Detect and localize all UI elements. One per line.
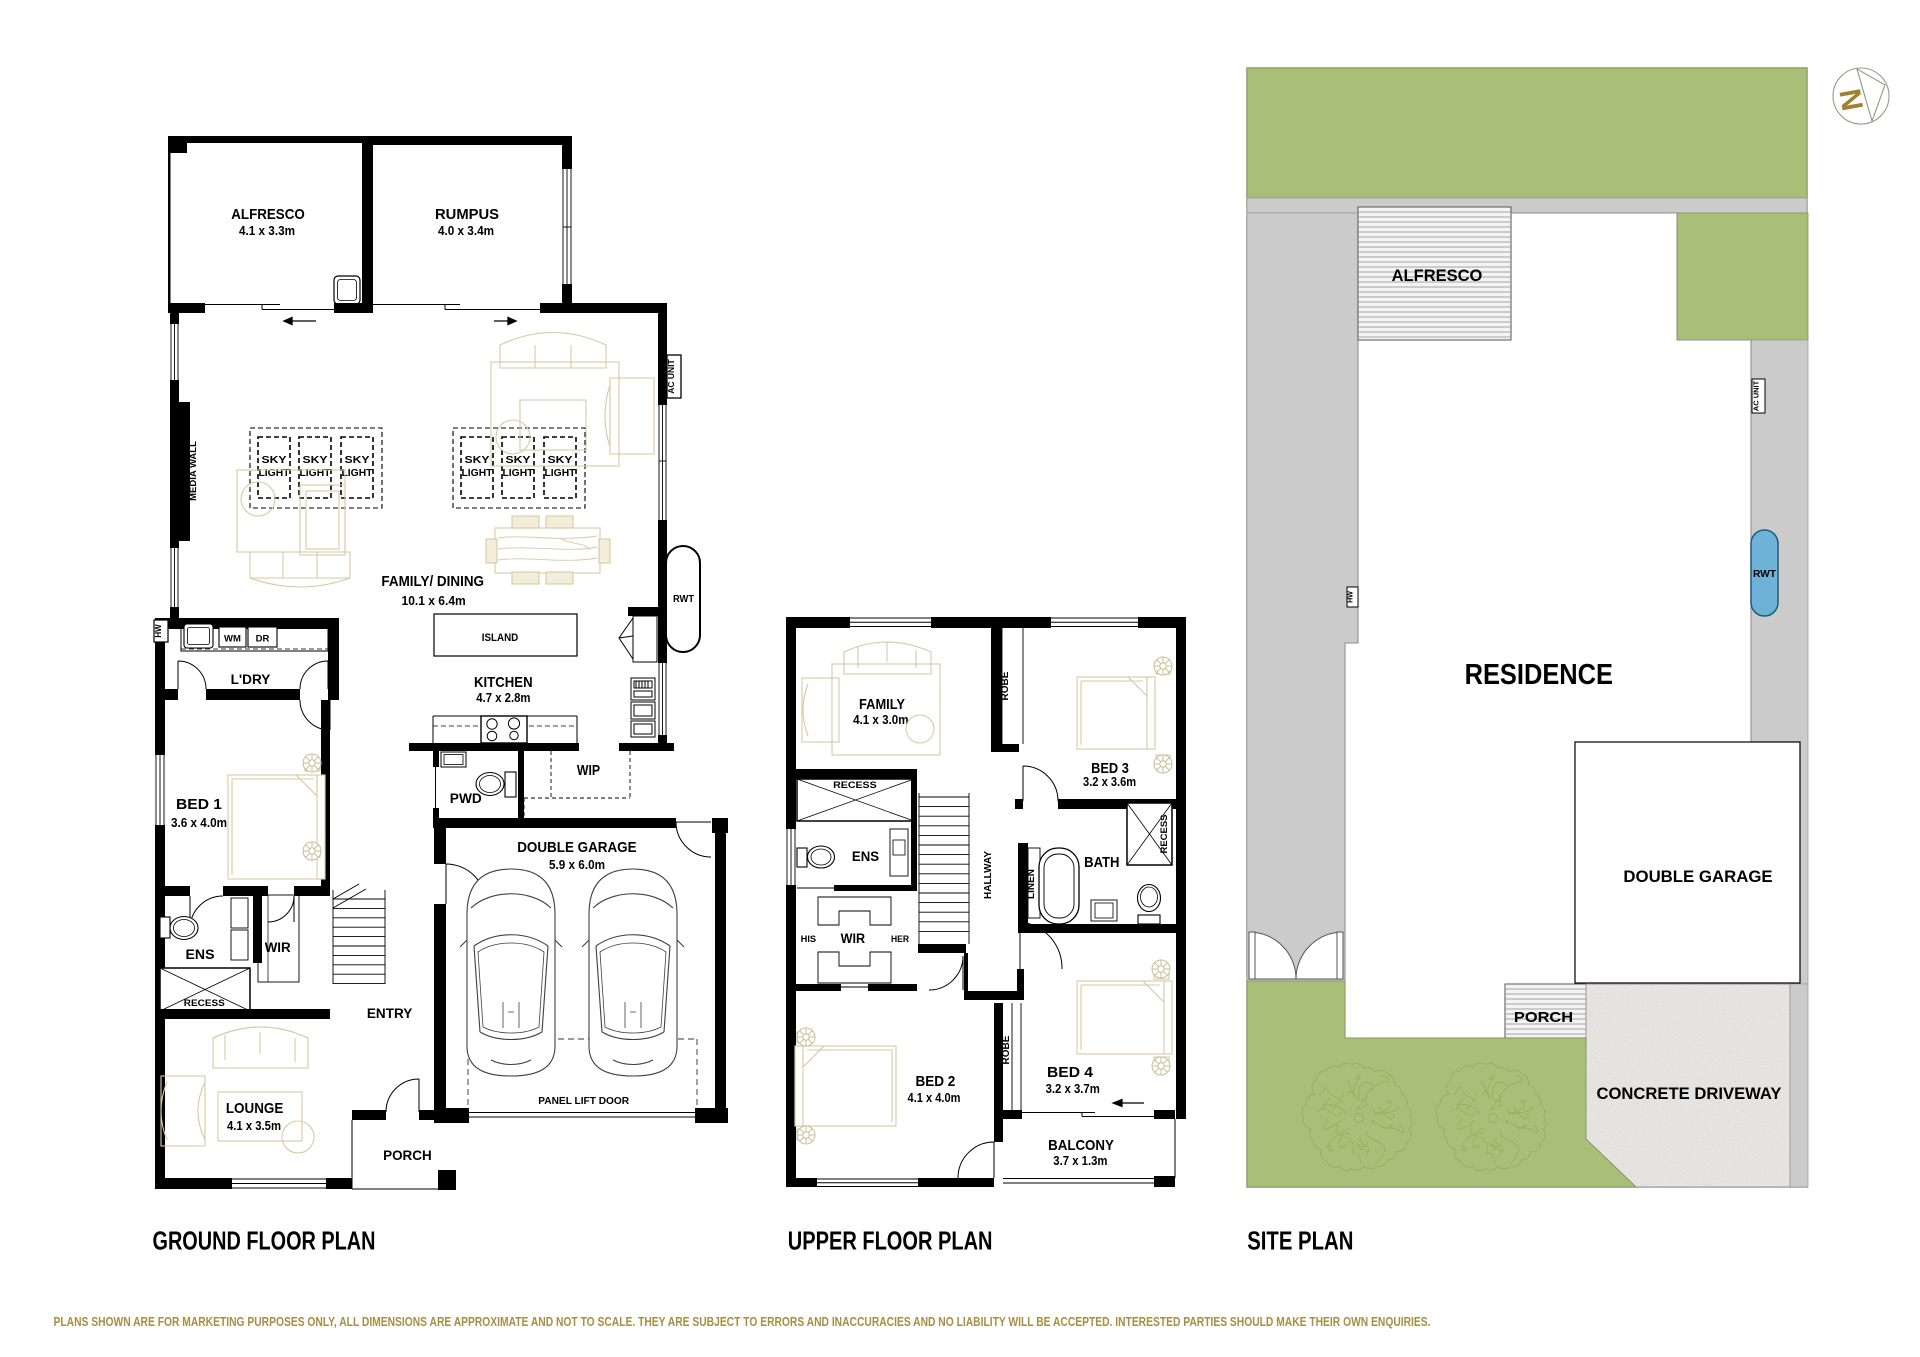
svg-text:LOUNGE: LOUNGE bbox=[226, 1100, 284, 1117]
svg-text:RECESS: RECESS bbox=[184, 998, 225, 1009]
svg-text:ISLAND: ISLAND bbox=[482, 632, 519, 644]
svg-text:RECESS: RECESS bbox=[833, 780, 877, 791]
svg-text:SKY: SKY bbox=[262, 455, 287, 466]
svg-text:BALCONY: BALCONY bbox=[1048, 1137, 1114, 1154]
svg-text:SITE PLAN: SITE PLAN bbox=[1247, 1226, 1353, 1256]
svg-text:ALFRESCO: ALFRESCO bbox=[231, 206, 305, 223]
svg-text:AC UNIT: AC UNIT bbox=[1752, 380, 1761, 411]
svg-text:ENTRY: ENTRY bbox=[367, 1006, 412, 1021]
svg-text:PLANS SHOWN ARE FOR MARKETING: PLANS SHOWN ARE FOR MARKETING PURPOSES O… bbox=[54, 1315, 1431, 1329]
svg-text:UPPER FLOOR PLAN: UPPER FLOOR PLAN bbox=[788, 1226, 993, 1256]
svg-text:WIR: WIR bbox=[841, 931, 866, 946]
svg-text:ENS: ENS bbox=[852, 849, 879, 864]
svg-text:AC UNIT: AC UNIT bbox=[666, 358, 676, 393]
svg-text:4.1 x 3.3m: 4.1 x 3.3m bbox=[239, 224, 295, 238]
svg-text:CONCRETE DRIVEWAY: CONCRETE DRIVEWAY bbox=[1597, 1084, 1783, 1103]
svg-text:4.7 x 2.8m: 4.7 x 2.8m bbox=[476, 691, 530, 705]
svg-text:WM: WM bbox=[224, 634, 241, 645]
svg-text:PANEL LIFT DOOR: PANEL LIFT DOOR bbox=[538, 1096, 630, 1107]
svg-text:PORCH: PORCH bbox=[383, 1148, 432, 1163]
svg-text:LIGHT: LIGHT bbox=[342, 468, 373, 479]
svg-text:FAMILY/ DINING: FAMILY/ DINING bbox=[381, 573, 484, 590]
svg-text:3.2 x 3.6m: 3.2 x 3.6m bbox=[1083, 775, 1136, 789]
svg-text:SKY: SKY bbox=[506, 455, 531, 466]
svg-text:FAMILY: FAMILY bbox=[859, 696, 905, 713]
svg-text:DOUBLE GARAGE: DOUBLE GARAGE bbox=[1623, 867, 1772, 886]
svg-text:HIS: HIS bbox=[801, 934, 817, 945]
svg-text:4.1 x 4.0m: 4.1 x 4.0m bbox=[908, 1091, 961, 1105]
svg-text:3.2 x 3.7m: 3.2 x 3.7m bbox=[1046, 1082, 1100, 1096]
svg-text:ENS: ENS bbox=[186, 947, 215, 962]
svg-text:3.7 x 1.3m: 3.7 x 1.3m bbox=[1053, 1154, 1107, 1168]
svg-text:RECESS: RECESS bbox=[1159, 814, 1170, 853]
svg-text:WIR: WIR bbox=[265, 940, 291, 955]
svg-text:DOUBLE GARAGE: DOUBLE GARAGE bbox=[517, 839, 636, 856]
svg-text:RESIDENCE: RESIDENCE bbox=[1465, 659, 1613, 691]
svg-text:PORCH: PORCH bbox=[1514, 1009, 1573, 1026]
svg-text:GROUND FLOOR PLAN: GROUND FLOOR PLAN bbox=[153, 1226, 376, 1256]
svg-text:LIGHT: LIGHT bbox=[462, 468, 493, 479]
svg-text:LIGHT: LIGHT bbox=[503, 468, 534, 479]
svg-text:HER: HER bbox=[891, 934, 909, 945]
svg-text:BED 4: BED 4 bbox=[1047, 1064, 1094, 1081]
svg-text:BED 2: BED 2 bbox=[915, 1073, 955, 1090]
svg-text:MEDIA WALL: MEDIA WALL bbox=[188, 441, 199, 501]
svg-text:5.9 x 6.0m: 5.9 x 6.0m bbox=[549, 858, 605, 872]
svg-text:BED 1: BED 1 bbox=[176, 796, 222, 813]
svg-text:SKY: SKY bbox=[303, 455, 328, 466]
svg-text:SKY: SKY bbox=[345, 455, 370, 466]
svg-text:SKY: SKY bbox=[548, 455, 573, 466]
svg-text:LINEN: LINEN bbox=[1026, 869, 1037, 899]
svg-text:KITCHEN: KITCHEN bbox=[474, 674, 533, 691]
svg-text:RWT: RWT bbox=[1753, 569, 1776, 580]
svg-text:L'DRY: L'DRY bbox=[231, 672, 271, 687]
svg-text:ROBE: ROBE bbox=[1001, 1035, 1012, 1064]
svg-text:DR: DR bbox=[256, 634, 270, 645]
svg-text:RWT: RWT bbox=[673, 594, 694, 605]
svg-text:WIP: WIP bbox=[577, 762, 600, 779]
svg-text:PWD: PWD bbox=[450, 791, 482, 806]
svg-text:4.1 x 3.5m: 4.1 x 3.5m bbox=[227, 1119, 281, 1133]
svg-text:BATH: BATH bbox=[1084, 854, 1119, 871]
svg-text:HW: HW bbox=[1348, 591, 1355, 603]
svg-text:3.6 x 4.0m: 3.6 x 4.0m bbox=[171, 816, 227, 830]
svg-text:HW: HW bbox=[154, 624, 163, 638]
svg-text:4.0 x 3.4m: 4.0 x 3.4m bbox=[438, 224, 494, 238]
svg-text:RUMPUS: RUMPUS bbox=[435, 206, 499, 223]
svg-text:ROBE: ROBE bbox=[1000, 671, 1011, 700]
svg-text:SKY: SKY bbox=[465, 455, 490, 466]
svg-text:ALFRESCO: ALFRESCO bbox=[1392, 266, 1483, 285]
svg-text:4.1 x 3.0m: 4.1 x 3.0m bbox=[853, 713, 908, 727]
svg-text:10.1 x 6.4m: 10.1 x 6.4m bbox=[402, 594, 466, 608]
svg-text:LIGHT: LIGHT bbox=[545, 468, 576, 479]
svg-text:HALLWAY: HALLWAY bbox=[983, 851, 994, 899]
